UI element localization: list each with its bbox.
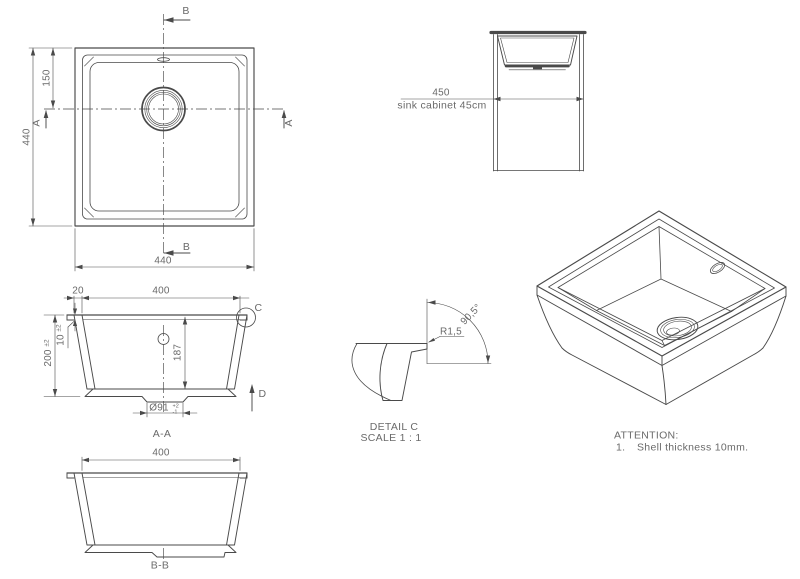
radius-dimension: R1,5 xyxy=(428,327,464,343)
section-aa-label: A-A xyxy=(153,428,171,440)
dim-label: 440 xyxy=(154,256,172,267)
detail-c-circle xyxy=(237,308,256,327)
section-marker-b-bottom: B xyxy=(164,241,190,256)
detail-c-view: 90,5° R1,5 DETAIL C SCALE 1 : 1 xyxy=(352,299,491,444)
attention-note: ATTENTION: 1. Shell thickness 10mm. xyxy=(614,430,748,454)
sink-in-cabinet xyxy=(498,36,578,70)
section-label-b: B xyxy=(183,241,190,253)
left-wall-section xyxy=(74,315,95,389)
dim-tolerance: ±2 xyxy=(56,324,63,332)
dim-10: 10 ±2 xyxy=(56,303,78,348)
dim-tolerance-lower: -1 xyxy=(173,410,178,416)
section-bb-label: B-B xyxy=(151,560,169,572)
dim-label: 150 xyxy=(42,69,53,87)
section-label-a: A xyxy=(283,119,295,126)
detail-break-boundary xyxy=(352,344,391,401)
dim-400-bb: 400 xyxy=(82,448,240,471)
sink-bowl-edge xyxy=(90,63,239,212)
note-item-number: 1. xyxy=(616,442,625,454)
technical-drawing: 440 150 440 B B xyxy=(0,0,800,579)
rim-outer xyxy=(537,211,786,356)
drawing-sheet: 440 150 440 B B xyxy=(0,0,800,579)
dim-label: 450 xyxy=(432,88,450,99)
dim-label: 10 xyxy=(56,334,67,346)
radius-label: R1,5 xyxy=(440,327,462,338)
section-label-a: A xyxy=(31,119,43,126)
corner-chamfer-marks xyxy=(85,57,245,217)
cabinet-view: 450 sink cabinet 45cm xyxy=(397,33,585,172)
dim-label: 440 xyxy=(22,128,33,146)
sink-outer-edge xyxy=(75,48,254,226)
dim-label: 200 xyxy=(43,349,54,367)
detail-c-marker: C xyxy=(255,302,263,314)
dim-150-drain-offset: 150 xyxy=(42,48,56,108)
dim-tolerance: ±2 xyxy=(44,339,51,347)
cabinet-caption: sink cabinet 45cm xyxy=(397,100,486,112)
section-label-b: B xyxy=(182,5,189,17)
bottom-section xyxy=(85,389,236,402)
dim-label: 20 xyxy=(72,286,84,297)
wall-cross-section xyxy=(380,344,427,401)
section-bb-view: 400 B-B xyxy=(67,448,247,572)
right-wall-section xyxy=(227,315,248,389)
dim-450: 450 sink cabinet 45cm xyxy=(397,88,583,112)
dim-20-400: 20 400 xyxy=(64,286,249,314)
right-wall-section xyxy=(227,473,248,545)
overflow-isometric xyxy=(708,260,726,276)
note-item-text: Shell thickness 10mm. xyxy=(637,442,748,454)
drain-stub xyxy=(533,67,542,69)
isometric-view xyxy=(537,211,786,405)
body-outline xyxy=(537,286,786,405)
angle-label: 90,5° xyxy=(459,302,484,327)
left-wall-section xyxy=(74,473,95,545)
dim-187: 187 xyxy=(173,317,188,389)
dim-label: 187 xyxy=(173,344,184,362)
rim-inner xyxy=(549,219,775,348)
section-aa-view: C 20 400 200 ±2 xyxy=(43,286,267,441)
dim-label: 400 xyxy=(152,448,170,459)
sink-rim-inner-edge xyxy=(83,55,248,219)
dim-440-bottom: 440 xyxy=(75,229,254,272)
section-marker-a-right: A xyxy=(282,110,295,128)
dim-label: Ø91 xyxy=(149,403,169,414)
bottom-section xyxy=(85,545,236,557)
section-marker-b-top: B xyxy=(164,5,190,23)
dim-label: 400 xyxy=(152,286,170,297)
drain-isometric xyxy=(656,315,700,342)
direction-marker-d: D xyxy=(249,384,266,411)
dim-drain-diameter: Ø91 +2 -1 xyxy=(133,403,197,418)
top-view: 440 150 440 B B xyxy=(22,5,296,271)
note-title: ATTENTION: xyxy=(614,430,679,442)
detail-scale: SCALE 1 : 1 xyxy=(360,432,421,444)
direction-label-d: D xyxy=(259,388,267,400)
